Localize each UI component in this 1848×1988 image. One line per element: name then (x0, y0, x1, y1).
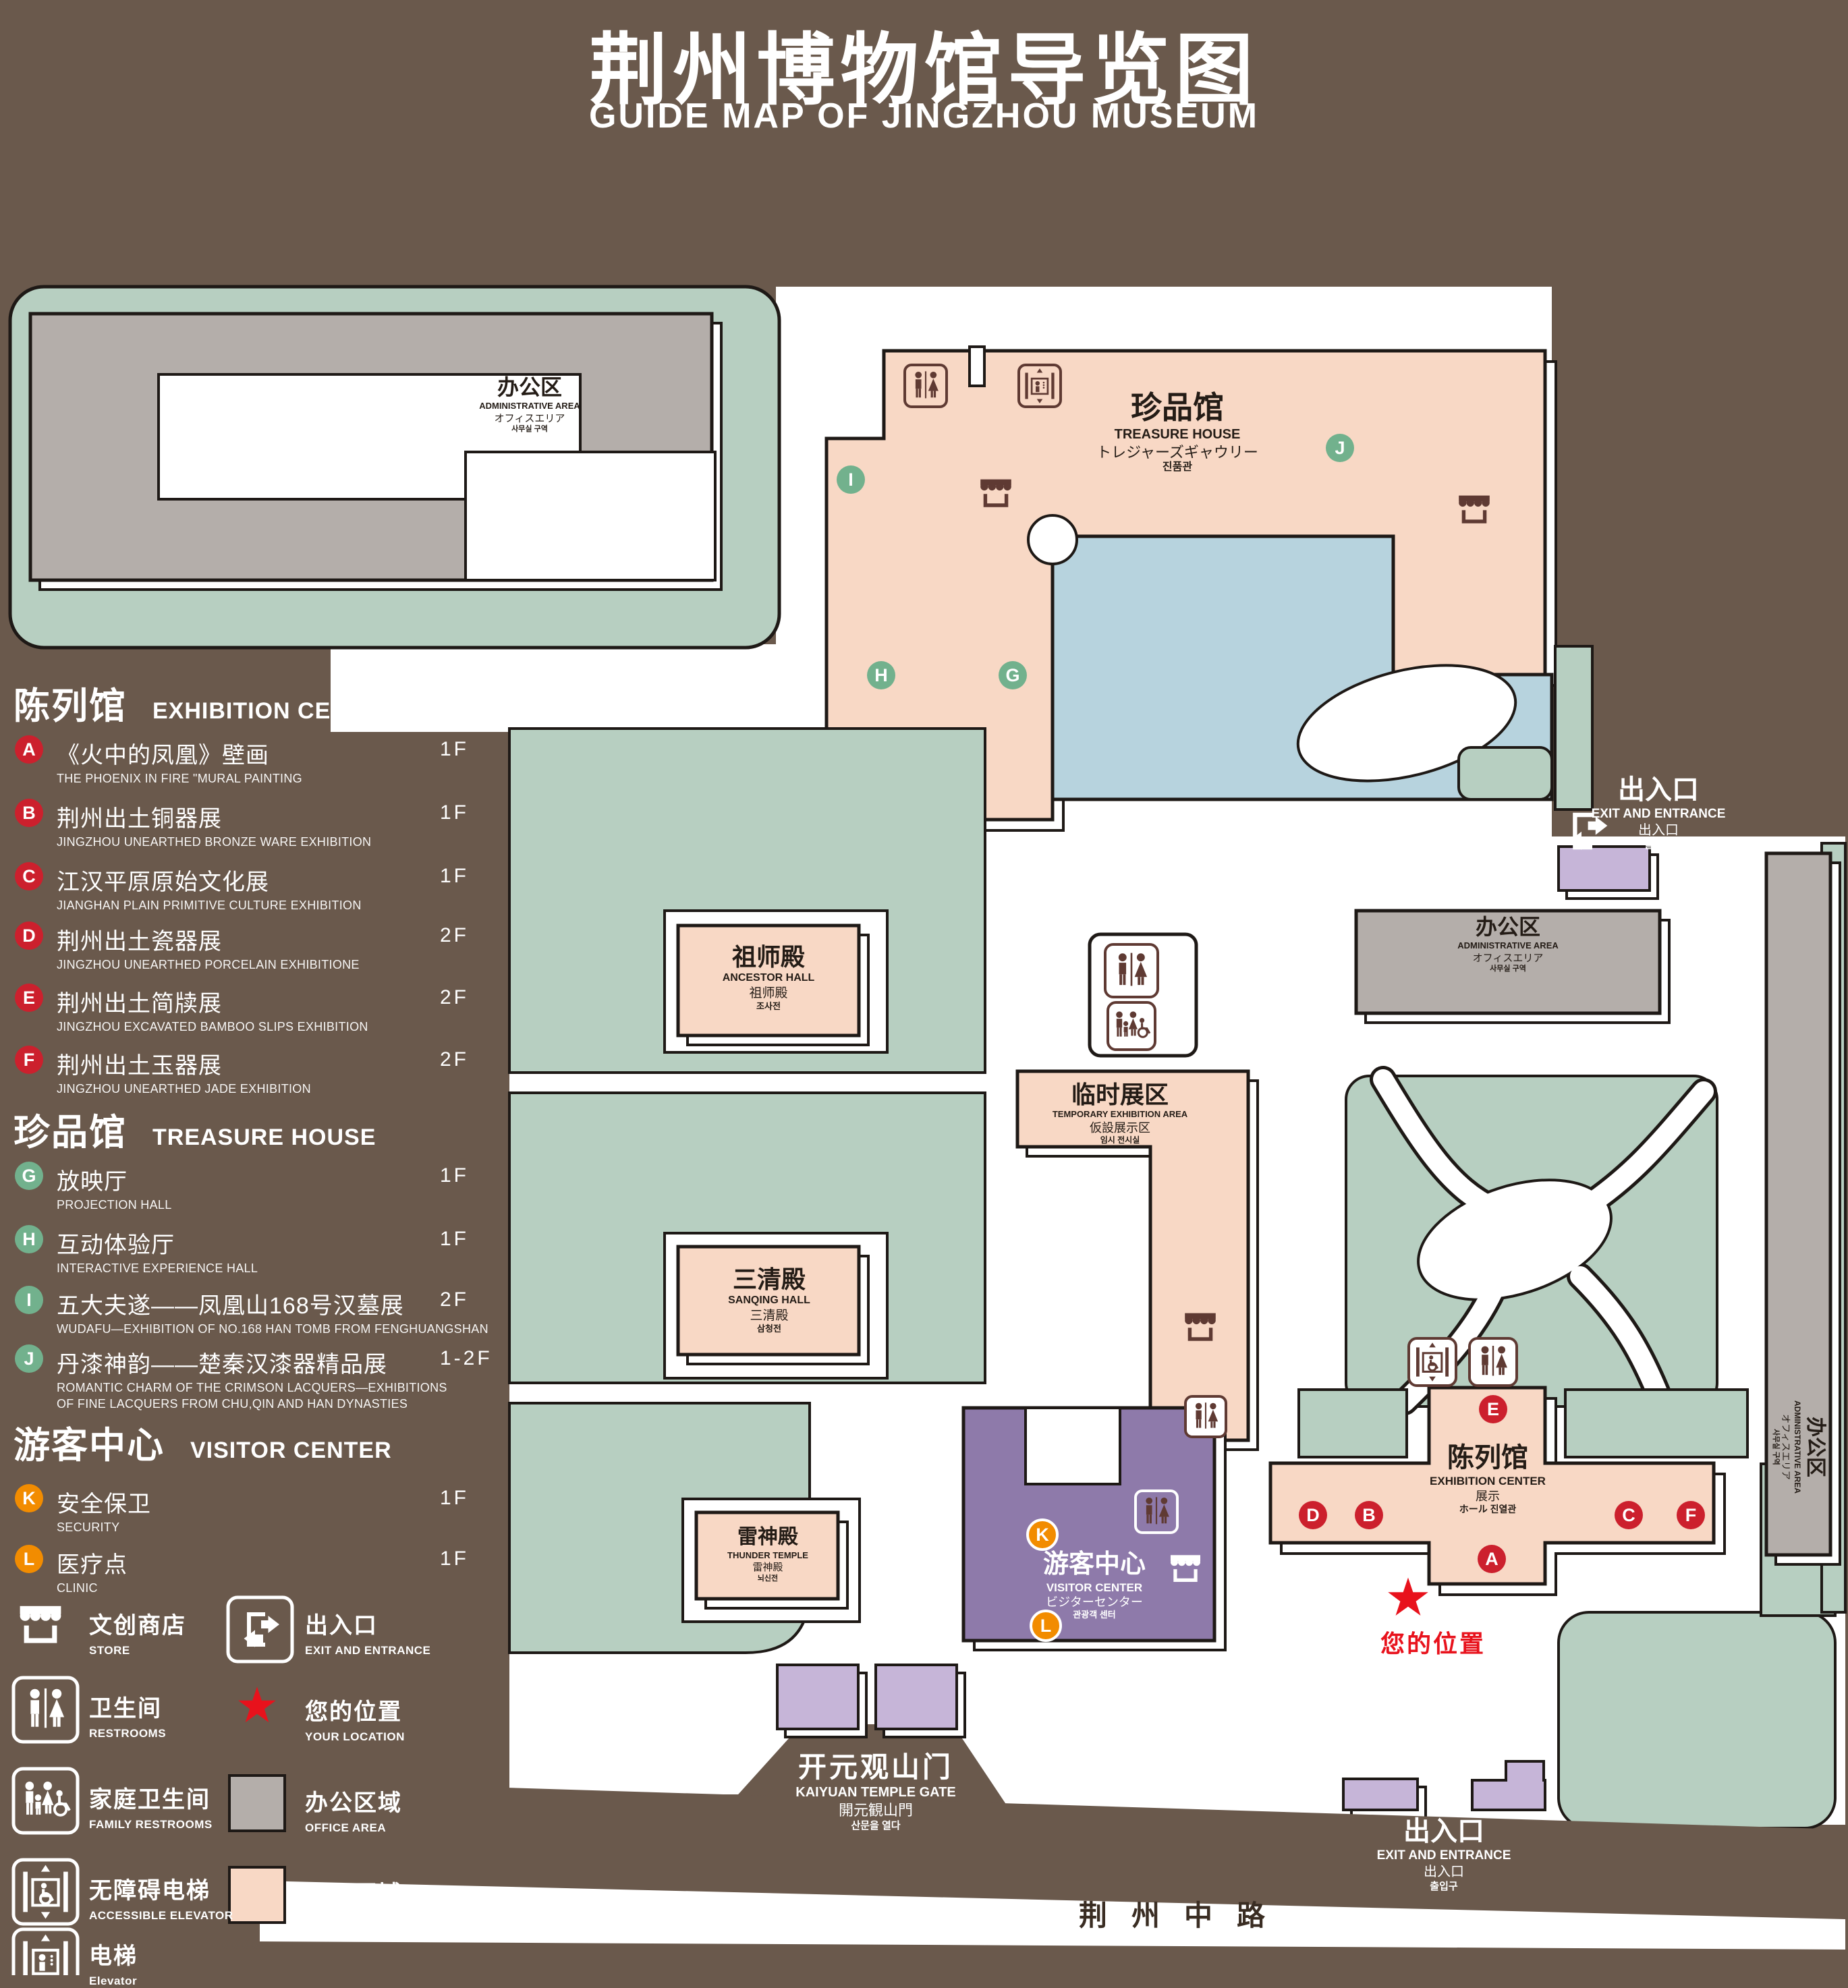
label-visitor-center: 游客中心 VISITOR CENTER ビジターセンター 관광객 센터 (1043, 1550, 1146, 1620)
gate-building-east (876, 1665, 957, 1729)
map-marker-l: L (1030, 1610, 1062, 1642)
floor-label: 1F (440, 738, 469, 761)
map-marker-h: H (867, 661, 895, 689)
marker-k: K (15, 1484, 43, 1512)
office-area-swatch (229, 1776, 285, 1831)
exit-south-building-west (1343, 1779, 1418, 1810)
floor-label: 1F (440, 865, 469, 888)
display-area-swatch (229, 1867, 285, 1923)
facility-exit: 出入口 EXIT AND ENTRANCE (305, 1607, 430, 1657)
label-exhibition-center: 陈列馆 EXHIBITION CENTER 展示 ホール 진열관 (1430, 1442, 1546, 1514)
map-marker-i: I (837, 465, 865, 494)
legend-item-c: C 江汉平原原始文化展 JIANGHAN PLAIN PRIMITIVE CUL… (15, 863, 514, 913)
legend-item-a: A 《火中的凤凰》壁画 THE PHOENIX IN FIRE "MURAL P… (15, 737, 514, 786)
marker-j: J (15, 1344, 43, 1373)
restrooms-icon (1469, 1338, 1517, 1386)
gate-building-west (777, 1665, 858, 1729)
map-marker-c: C (1615, 1501, 1643, 1529)
facility-your-location: 您的位置 YOUR LOCATION (305, 1693, 405, 1744)
map-marker-k: K (1026, 1518, 1059, 1551)
floor-label: 1F (440, 1547, 469, 1570)
page-subtitle: GUIDE MAP OF JINGZHOU MUSEUM (0, 96, 1848, 136)
map-marker-f: F (1677, 1501, 1705, 1529)
elevator-icon (13, 1929, 78, 1975)
marker-c: C (15, 862, 43, 890)
marker-g: G (15, 1162, 43, 1190)
map-marker-b: B (1355, 1501, 1383, 1529)
marker-f: F (15, 1046, 43, 1074)
label-sanqing-hall: 三清殿 SANQING HALL 三清殿 삼청전 (728, 1266, 810, 1334)
legend-item-d: D 荆州出土瓷器展 JINGZHOU UNEARTHED PORCELAIN E… (15, 923, 514, 972)
label-exit-north: 出入口 EXIT AND ENTRANCE 出入口 출입구 (1592, 774, 1726, 851)
legend-item-k: K 安全保卫 SECURITY 1F (15, 1485, 514, 1535)
marker-d: D (15, 921, 43, 950)
floor-label: 1F (440, 1228, 469, 1251)
marker-a: A (15, 735, 43, 764)
legend-section-exhibition-center: 陈列馆 EXHIBITION CENTER (13, 676, 396, 729)
facility-elevator: 电梯 Elevator (89, 1937, 138, 1988)
label-admin-northwest: 办公区 ADMINISTRATIVE AREA オフィスエリア 사무실 구역 (479, 375, 580, 434)
exit-north-building (1559, 847, 1650, 890)
facility-store: 文创商店 STORE (89, 1607, 186, 1657)
label-road: 荆州中路 (1079, 1893, 1289, 1934)
marker-i: I (15, 1286, 43, 1314)
marker-l: L (15, 1545, 43, 1573)
floor-label: 1F (440, 801, 469, 824)
marker-b: B (15, 799, 43, 827)
label-admin-middle: 办公区 ADMINISTRATIVE AREA オフィスエリア 사무실 구역 (1457, 915, 1559, 973)
your-location-star (238, 1686, 276, 1722)
label-exit-south: 出入口 EXIT AND ENTRANCE 出入口 출입구 (1377, 1816, 1511, 1892)
green-area-southeast (1559, 1612, 1835, 1828)
floor-label: 1F (440, 1487, 469, 1510)
floor-label: 2F (440, 986, 469, 1009)
marker-e: E (15, 984, 43, 1012)
label-ancestor-hall: 祖师殿 ANCESTOR HALL 祖师殿 조사전 (723, 943, 815, 1012)
floor-label: 2F (440, 1288, 469, 1311)
map-marker-d: D (1299, 1501, 1327, 1529)
store-icon (20, 1606, 61, 1641)
legend-section-treasure-house: 珍品馆 TREASURE HOUSE (13, 1102, 376, 1156)
pond-bridge (1028, 515, 1077, 564)
label-admin-east: 办公区 ADMINISTRATIVE AREA オフィスエリア 사무실 구역 (1771, 1400, 1826, 1494)
label-thunder-temple: 雷神殿 THUNDER TEMPLE 雷神殿 뇌신전 (727, 1526, 808, 1583)
facility-office-area: 办公区域 OFFICE AREA (305, 1784, 402, 1835)
facility-family-restrooms: 家庭卫生间 FAMILY RESTROOMS (89, 1781, 213, 1831)
legend-item-h: H 互动体验厅 INTERACTIVE EXPERIENCE HALL 1F (15, 1226, 514, 1276)
label-temporary-exhibition: 临时展区 TEMPORARY EXHIBITION AREA 仮設展示区 임시 … (1053, 1081, 1187, 1145)
guide-map-poster: 荆州博物馆导览图 GUIDE MAP OF JINGZHOU MUSEUM 陈列… (0, 0, 1848, 1975)
label-kaiyuan-gate: 开元观山门 KAIYUAN TEMPLE GATE 開元観山門 산문을 열다 (795, 1751, 955, 1831)
map-marker-e: E (1479, 1395, 1507, 1423)
legend-item-f: F 荆州出土玉器展 JINGZHOU UNEARTHED JADE EXHIBI… (15, 1047, 514, 1096)
map-marker-a: A (1478, 1545, 1506, 1573)
restrooms-icon (1185, 1396, 1226, 1437)
map-marker-j: J (1326, 434, 1354, 462)
marker-h: H (15, 1225, 43, 1253)
label-treasure-house: 珍品馆 TREASURE HOUSE トレジャーズギャウリー 진품관 (1096, 390, 1258, 474)
accessible-elevator-icon (13, 1860, 78, 1924)
legend-item-e: E 荆州出土简牍展 JINGZHOU EXCAVATED BAMBOO SLIP… (15, 985, 514, 1034)
legend-item-i: I 五大夫遂——凤凰山168号汉墓展 WUDAFU—EXHIBITION OF … (15, 1287, 514, 1336)
restrooms-icon (13, 1678, 78, 1742)
facility-restrooms: 卫生间 RESTROOMS (89, 1690, 166, 1740)
floor-label: 1-2F (440, 1347, 493, 1370)
floor-label: 2F (440, 1048, 469, 1071)
family-restrooms-icon (13, 1769, 78, 1833)
legend-item-j: J 丹漆神韵——楚秦汉漆器精品展 ROMANTIC CHARM OF THE C… (15, 1346, 514, 1411)
map-marker-g: G (999, 661, 1027, 689)
floor-label: 2F (440, 924, 469, 947)
legend-section-visitor-center: 游客中心 VISITOR CENTER (13, 1415, 392, 1469)
facility-display-area: 展示区域 DISPLAY AREA (305, 1875, 402, 1926)
accessible-elevator-icon (1409, 1338, 1456, 1386)
exit-icon (228, 1597, 292, 1662)
floor-label: 1F (440, 1164, 469, 1187)
facility-accessible-elevator: 无障碍电梯 ACCESSIBLE ELEVATOR (89, 1872, 233, 1923)
admin-courtyard-2 (466, 452, 715, 580)
legend-item-g: G 放映厅 PROJECTION HALL 1F (15, 1163, 514, 1212)
legend-item-b: B 荆州出土铜器展 JINGZHOU UNEARTHED BRONZE WARE… (15, 800, 514, 849)
label-your-location: 您的位置 (1380, 1624, 1486, 1659)
legend-item-l: L 医疗点 CLINIC 1F (15, 1546, 514, 1595)
